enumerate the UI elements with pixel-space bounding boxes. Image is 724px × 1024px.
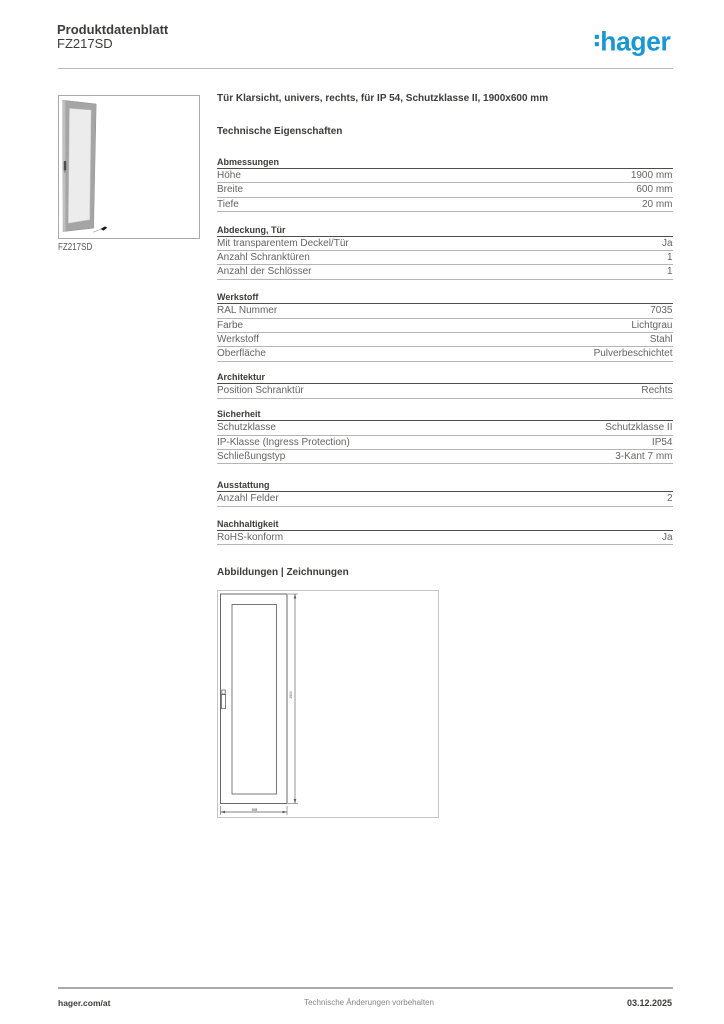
svg-text:598: 598 [252,807,258,811]
svg-text:hager: hager [600,28,670,57]
svg-text:1900: 1900 [289,691,293,699]
